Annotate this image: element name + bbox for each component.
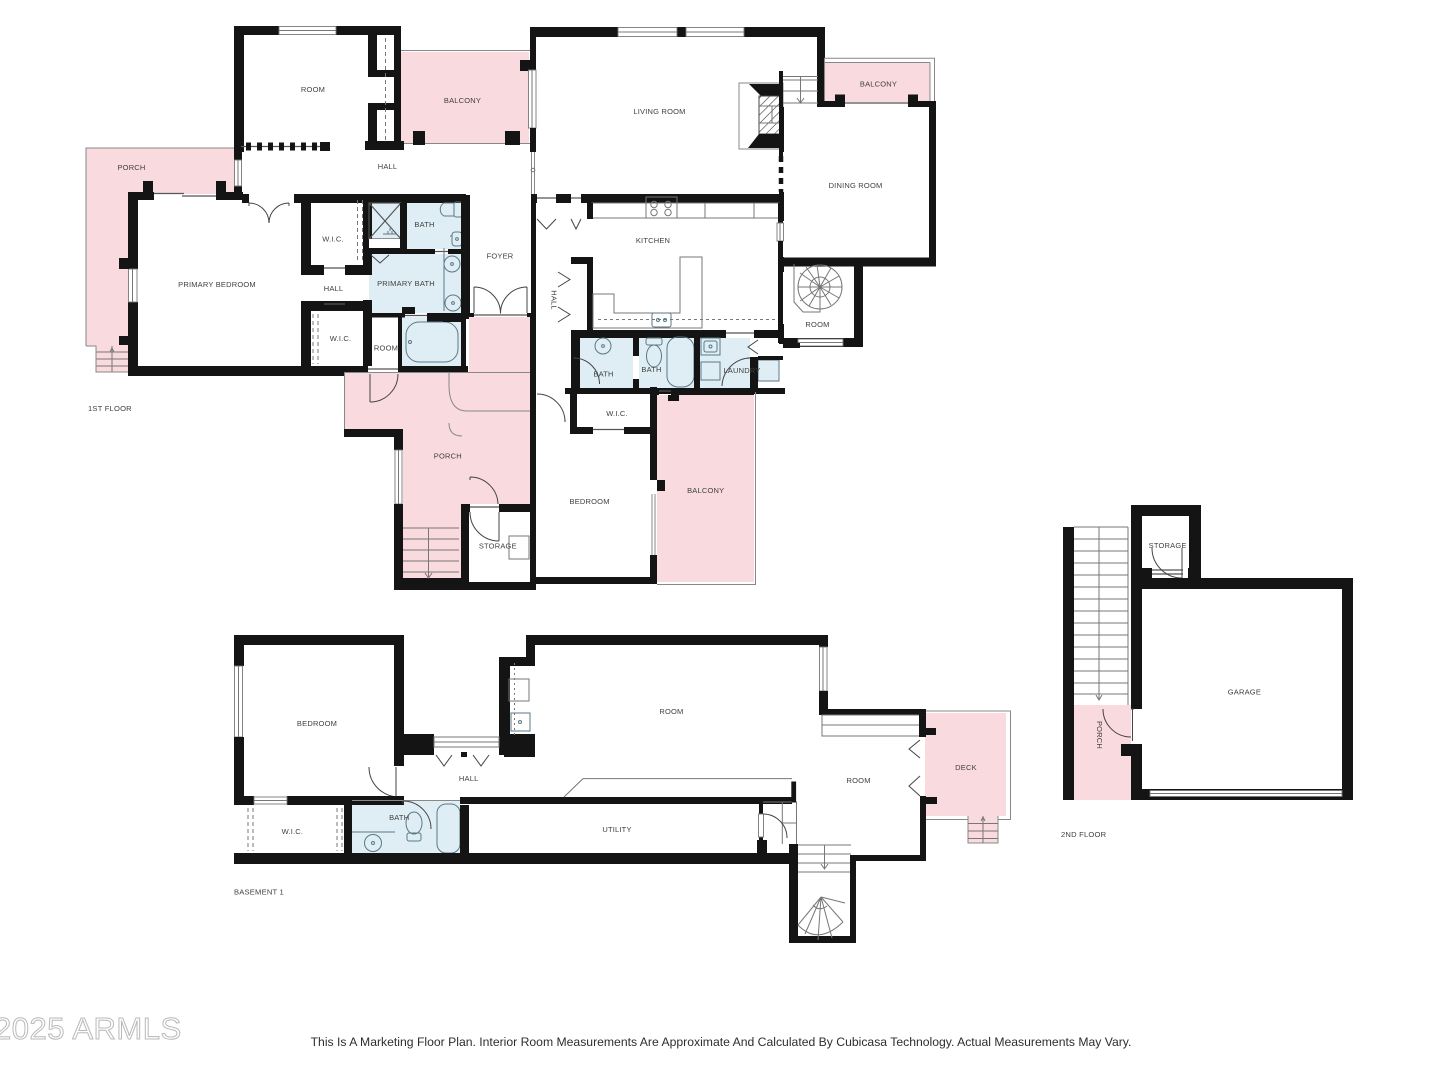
svg-text:HALL: HALL — [459, 774, 479, 783]
svg-text:GARAGE: GARAGE — [1228, 688, 1261, 697]
svg-text:HALL: HALL — [324, 284, 344, 293]
svg-text:BALCONY: BALCONY — [860, 80, 897, 89]
svg-text:KITCHEN: KITCHEN — [636, 236, 670, 245]
svg-text:STORAGE: STORAGE — [479, 542, 517, 551]
svg-text:BATH: BATH — [593, 370, 613, 379]
svg-text:BASEMENT 1: BASEMENT 1 — [234, 888, 284, 897]
svg-text:W.I.C.: W.I.C. — [322, 235, 344, 244]
svg-text:W.I.C.: W.I.C. — [282, 827, 304, 836]
svg-text:PORCH: PORCH — [117, 163, 145, 172]
svg-text:1ST FLOOR: 1ST FLOOR — [88, 404, 132, 413]
svg-text:BATH: BATH — [641, 365, 661, 374]
svg-text:HALL: HALL — [378, 162, 398, 171]
svg-text:PRIMARY BEDROOM: PRIMARY BEDROOM — [178, 280, 256, 289]
svg-text:BATH: BATH — [389, 813, 409, 822]
svg-text:LAUNDRY: LAUNDRY — [723, 366, 760, 375]
svg-text:PORCH: PORCH — [1095, 721, 1104, 749]
svg-text:FOYER: FOYER — [487, 252, 514, 261]
svg-text:This Is A Marketing Floor Plan: This Is A Marketing Floor Plan. Interior… — [311, 1035, 1132, 1049]
svg-text:W.I.C.: W.I.C. — [330, 334, 352, 343]
svg-text:W.I.C.: W.I.C. — [606, 409, 628, 418]
svg-text:BATH: BATH — [414, 220, 434, 229]
svg-text:ROOM: ROOM — [805, 320, 829, 329]
svg-text:PORCH: PORCH — [434, 452, 462, 461]
svg-text:UTILITY: UTILITY — [602, 825, 631, 834]
svg-text:PRIMARY BATH: PRIMARY BATH — [377, 279, 435, 288]
svg-text:2025 ARMLS: 2025 ARMLS — [0, 1011, 182, 1046]
svg-text:BALCONY: BALCONY — [444, 96, 481, 105]
svg-text:LIVING ROOM: LIVING ROOM — [633, 107, 685, 116]
svg-text:BALCONY: BALCONY — [687, 486, 724, 495]
svg-text:2ND FLOOR: 2ND FLOOR — [1061, 830, 1107, 839]
svg-text:ROOM: ROOM — [847, 776, 871, 785]
svg-text:DINING ROOM: DINING ROOM — [829, 181, 883, 190]
svg-text:ROOM: ROOM — [374, 344, 398, 353]
svg-text:DECK: DECK — [955, 763, 977, 772]
svg-text:HALL: HALL — [550, 290, 559, 310]
svg-text:ROOM: ROOM — [301, 85, 325, 94]
svg-text:STORAGE: STORAGE — [1149, 541, 1187, 550]
svg-text:BEDROOM: BEDROOM — [297, 719, 337, 728]
svg-text:BEDROOM: BEDROOM — [570, 497, 610, 506]
svg-text:ROOM: ROOM — [659, 707, 683, 716]
